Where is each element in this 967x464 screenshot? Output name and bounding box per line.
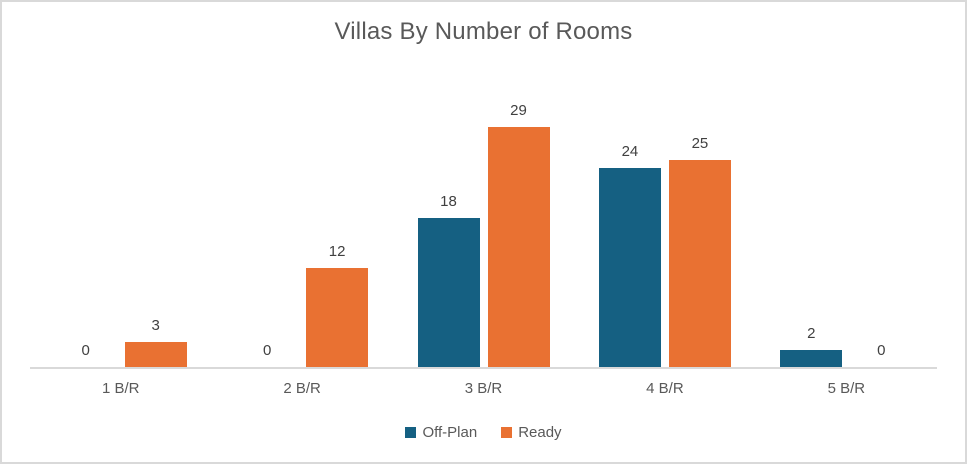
data-label: 29: [510, 102, 527, 119]
bar-column: 18: [418, 193, 480, 367]
chart[interactable]: Villas By Number of Rooms 03012182924252…: [0, 0, 967, 464]
bar: [599, 168, 661, 367]
legend-item[interactable]: Off-Plan: [405, 424, 477, 441]
bar: [488, 127, 550, 367]
bar-column: 0: [850, 342, 912, 367]
category-axis: 1 B/R2 B/R3 B/R4 B/R5 B/R: [30, 369, 937, 397]
bar-column: 25: [669, 135, 731, 367]
plot-area: 030121829242520: [30, 67, 937, 369]
data-label: 3: [152, 317, 160, 334]
bar-group: 1829: [393, 67, 574, 367]
bar-column: 24: [599, 143, 661, 367]
bar-column: 29: [488, 102, 550, 367]
legend-swatch-icon: [501, 427, 512, 438]
chart-title: Villas By Number of Rooms: [2, 17, 965, 46]
data-label: 0: [82, 342, 90, 359]
data-label: 18: [440, 193, 457, 210]
category-label: 3 B/R: [393, 369, 574, 397]
category-label: 5 B/R: [756, 369, 937, 397]
data-label: 0: [877, 342, 885, 359]
bar: [125, 342, 187, 367]
category-label: 2 B/R: [211, 369, 392, 397]
bar-group: 03: [30, 67, 211, 367]
bar-column: 3: [125, 317, 187, 367]
legend-label: Ready: [518, 424, 561, 441]
bar: [418, 218, 480, 367]
bar: [780, 350, 842, 367]
category-label: 1 B/R: [30, 369, 211, 397]
bar-group: 20: [756, 67, 937, 367]
data-label: 25: [692, 135, 709, 152]
bar-column: 0: [55, 342, 117, 367]
bar: [306, 268, 368, 367]
data-label: 0: [263, 342, 271, 359]
data-label: 2: [807, 325, 815, 342]
bar-column: 0: [236, 342, 298, 367]
legend-label: Off-Plan: [422, 424, 477, 441]
legend: Off-PlanReady: [2, 424, 965, 441]
legend-swatch-icon: [405, 427, 416, 438]
bar-group: 2425: [574, 67, 755, 367]
bar-group: 012: [211, 67, 392, 367]
category-label: 4 B/R: [574, 369, 755, 397]
bar-column: 12: [306, 243, 368, 367]
bar-column: 2: [780, 325, 842, 367]
legend-item[interactable]: Ready: [501, 424, 561, 441]
data-label: 24: [622, 143, 639, 160]
bar: [669, 160, 731, 367]
data-label: 12: [329, 243, 346, 260]
